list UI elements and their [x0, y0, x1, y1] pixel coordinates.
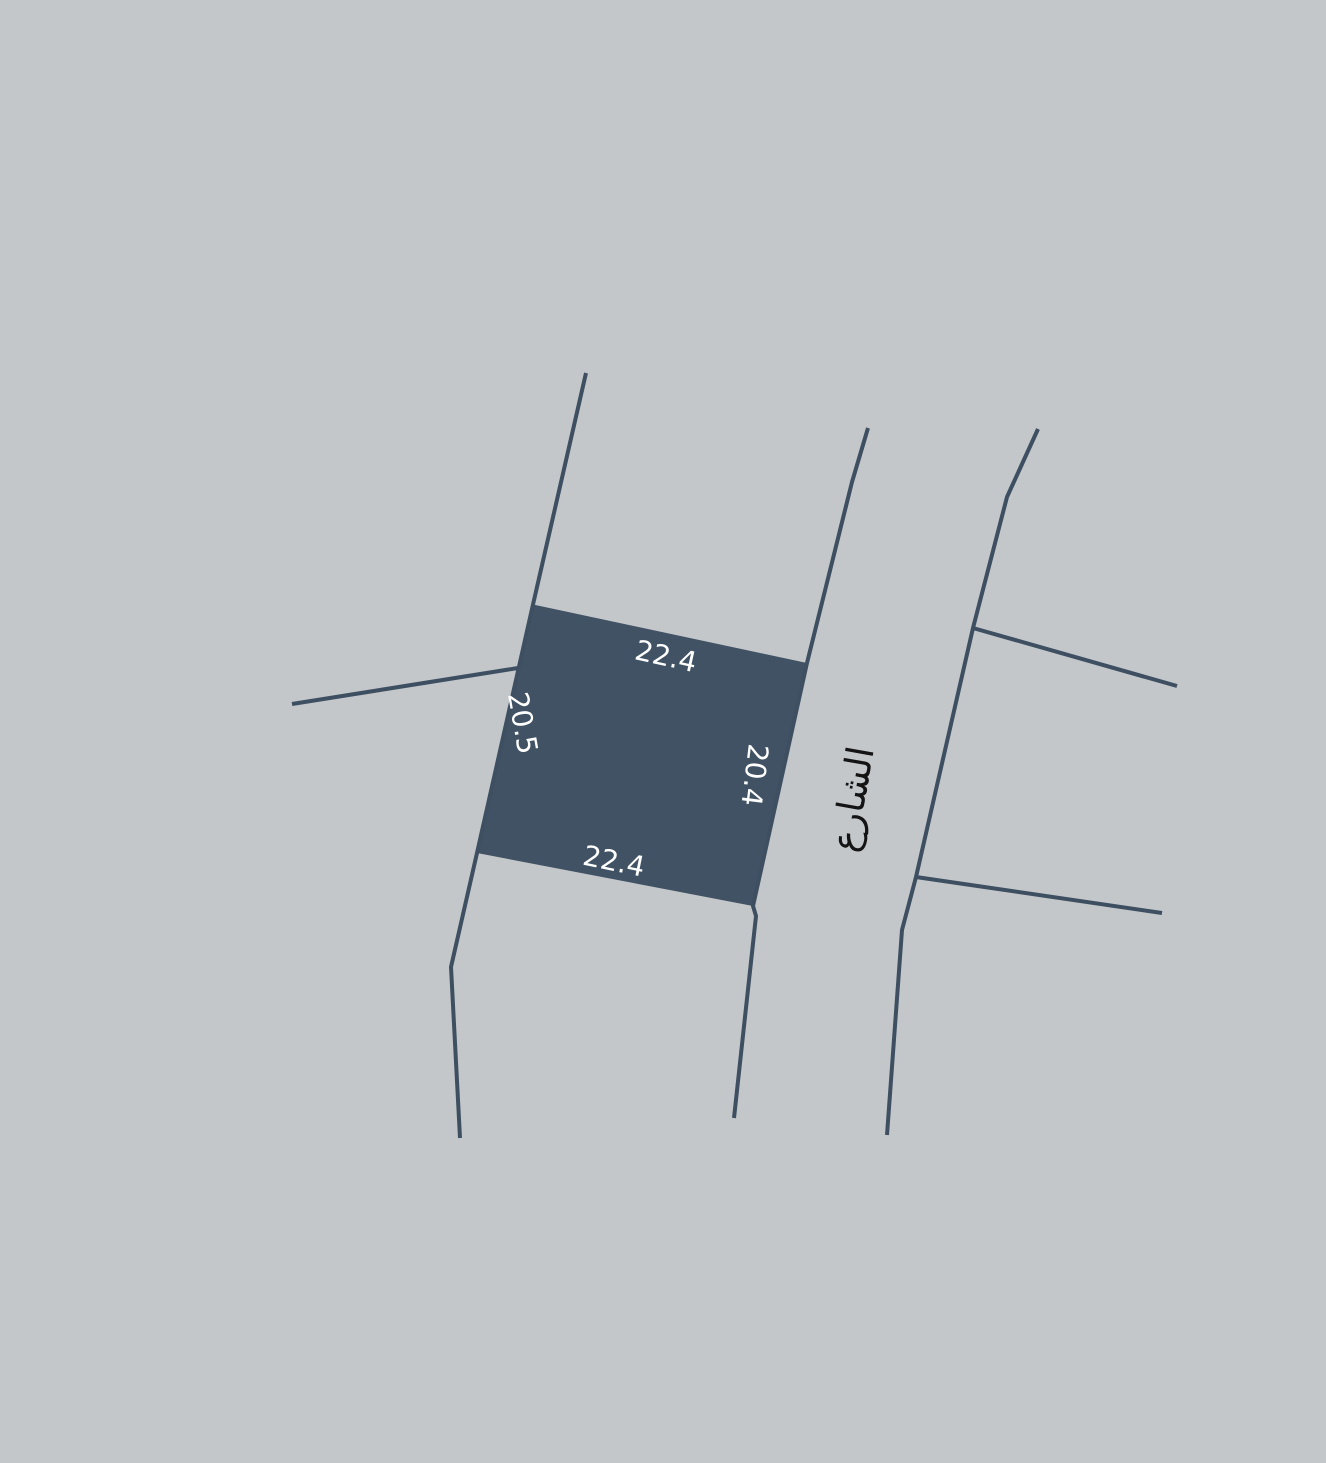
cadastral-map: 22.4 22.4 20.5 20.4 الشارع	[0, 0, 1326, 1463]
